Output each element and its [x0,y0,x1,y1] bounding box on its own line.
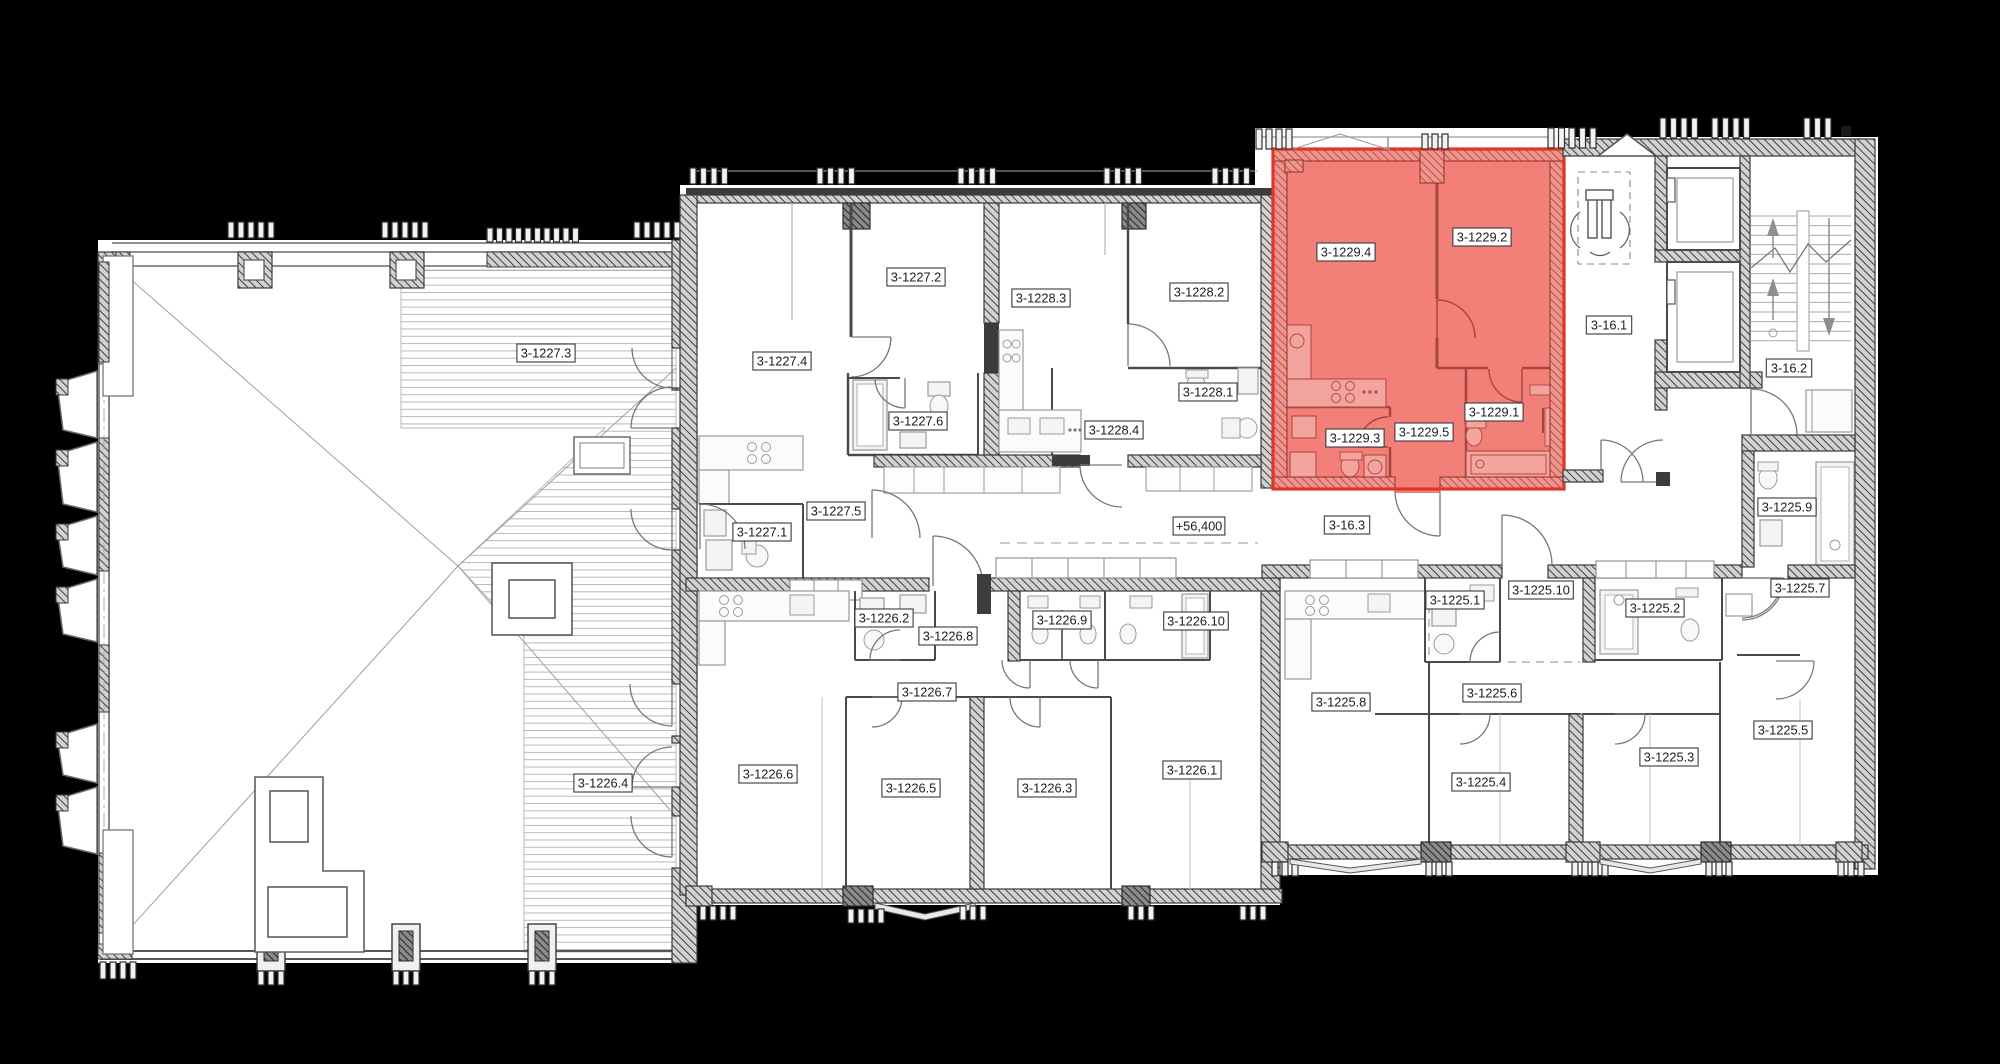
svg-text:3-1225.5: 3-1225.5 [1758,722,1809,737]
svg-text:3-1226.1: 3-1226.1 [1167,762,1218,777]
svg-text:3-1229.3: 3-1229.3 [1330,430,1381,445]
svg-text:3-1227.6: 3-1227.6 [893,413,944,428]
svg-text:3-1225.3: 3-1225.3 [1644,749,1695,764]
svg-text:3-1227.2: 3-1227.2 [891,269,942,284]
svg-text:3-1225.8: 3-1225.8 [1316,694,1367,709]
svg-text:3-1228.1: 3-1228.1 [1183,384,1234,399]
svg-text:3-1225.10: 3-1225.10 [1512,582,1570,597]
svg-text:3-1227.5: 3-1227.5 [811,503,862,518]
svg-text:3-1225.6: 3-1225.6 [1467,685,1518,700]
svg-text:3-1228.2: 3-1228.2 [1174,284,1225,299]
svg-text:3-1226.10: 3-1226.10 [1167,613,1225,628]
svg-text:3-1226.6: 3-1226.6 [743,766,794,781]
svg-text:3-1228.4: 3-1228.4 [1089,422,1140,437]
svg-text:3-1228.3: 3-1228.3 [1016,290,1067,305]
svg-text:3-1229.4: 3-1229.4 [1321,244,1372,259]
svg-text:3-1227.3: 3-1227.3 [521,345,572,360]
svg-text:3-1225.1: 3-1225.1 [1430,592,1481,607]
svg-text:3-1227.4: 3-1227.4 [757,353,808,368]
svg-text:3-1226.2: 3-1226.2 [859,610,910,625]
svg-text:+56,400: +56,400 [1176,518,1223,533]
svg-text:3-1226.9: 3-1226.9 [1037,612,1088,627]
svg-text:3-1225.2: 3-1225.2 [1630,600,1681,615]
svg-text:3-1226.8: 3-1226.8 [923,628,974,643]
svg-text:3-1229.2: 3-1229.2 [1457,229,1508,244]
svg-text:3-16.3: 3-16.3 [1329,517,1365,532]
svg-text:3-16.1: 3-16.1 [1591,317,1627,332]
svg-text:3-1226.5: 3-1226.5 [886,780,937,795]
svg-text:3-1226.4: 3-1226.4 [578,775,629,790]
svg-text:3-1225.9: 3-1225.9 [1762,499,1813,514]
svg-text:3-1229.1: 3-1229.1 [1469,404,1520,419]
svg-text:3-1225.4: 3-1225.4 [1456,774,1507,789]
svg-text:3-1225.7: 3-1225.7 [1775,580,1826,595]
svg-text:3-1226.7: 3-1226.7 [902,684,953,699]
svg-text:3-1227.1: 3-1227.1 [737,524,788,539]
svg-text:3-16.2: 3-16.2 [1771,360,1807,375]
svg-text:3-1229.5: 3-1229.5 [1399,424,1450,439]
svg-text:3-1226.3: 3-1226.3 [1022,780,1073,795]
